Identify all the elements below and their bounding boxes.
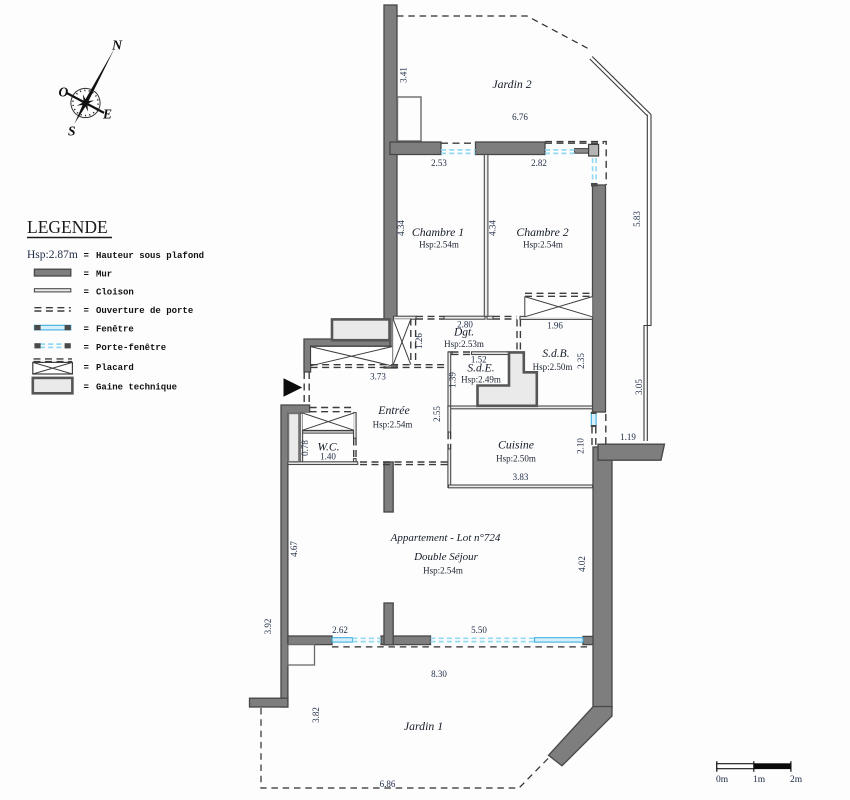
svg-text:2.53: 2.53: [431, 158, 447, 168]
svg-text:O: O: [59, 85, 69, 100]
svg-text:=: =: [84, 251, 89, 261]
svg-text:4.34: 4.34: [488, 220, 498, 236]
svg-text:Mur: Mur: [96, 270, 112, 280]
svg-text:5.83: 5.83: [632, 211, 642, 227]
svg-text:Hsp:2.54m: Hsp:2.54m: [423, 566, 463, 576]
svg-text:Placard: Placard: [96, 363, 134, 373]
svg-text:4.34: 4.34: [396, 220, 406, 236]
svg-text:Appartement - Lot n°724: Appartement - Lot n°724: [390, 532, 501, 544]
svg-text:2.82: 2.82: [531, 158, 547, 168]
svg-text:5.50: 5.50: [471, 625, 487, 635]
svg-text:Hsp:2.54m: Hsp:2.54m: [373, 420, 413, 430]
svg-text:=: =: [84, 343, 89, 353]
svg-text:S.d.B.: S.d.B.: [542, 348, 569, 360]
svg-text:Cuisine: Cuisine: [498, 438, 534, 452]
svg-text:3.05: 3.05: [634, 379, 644, 395]
svg-text:=: =: [84, 325, 89, 335]
svg-text:Jardin 2: Jardin 2: [492, 77, 531, 91]
svg-text:Entrée: Entrée: [377, 403, 409, 417]
svg-text:S: S: [68, 124, 76, 139]
svg-text:=: =: [84, 306, 89, 316]
svg-text:Gaine technique: Gaine technique: [96, 383, 177, 393]
svg-text:4.02: 4.02: [577, 556, 587, 572]
svg-text:8.30: 8.30: [431, 669, 447, 679]
svg-text:N: N: [111, 39, 123, 54]
svg-text:Hsp:2.50m: Hsp:2.50m: [533, 362, 573, 372]
svg-text:Hauteur sous plafond: Hauteur sous plafond: [96, 251, 204, 261]
svg-text:Cloison: Cloison: [96, 288, 134, 298]
svg-text:Dgt.: Dgt.: [453, 327, 474, 339]
svg-text:LEGENDE: LEGENDE: [27, 217, 108, 237]
svg-text:E: E: [102, 107, 112, 122]
svg-text:0.78: 0.78: [300, 440, 310, 456]
svg-text:2.62: 2.62: [332, 625, 348, 635]
svg-text:1m: 1m: [753, 775, 766, 785]
svg-text:=: =: [84, 270, 89, 280]
svg-text:Hsp:2.54m: Hsp:2.54m: [523, 240, 563, 250]
svg-text:Hsp:2.53m: Hsp:2.53m: [444, 339, 484, 349]
svg-text:1.39: 1.39: [448, 372, 458, 388]
svg-text:3.73: 3.73: [370, 372, 386, 382]
svg-text:1.19: 1.19: [620, 432, 636, 442]
svg-text:2.10: 2.10: [576, 438, 586, 454]
svg-text:6.86: 6.86: [380, 779, 396, 789]
svg-text:Hsp:2.49m: Hsp:2.49m: [461, 375, 501, 385]
svg-text:2m: 2m: [790, 775, 803, 785]
svg-text:=: =: [84, 363, 89, 373]
svg-text:Chambre 2: Chambre 2: [516, 225, 568, 239]
svg-text:3.92: 3.92: [263, 619, 273, 635]
svg-text:=: =: [84, 288, 89, 298]
svg-text:Double Séjour: Double Séjour: [413, 551, 479, 563]
svg-text:Chambre 1: Chambre 1: [412, 225, 464, 239]
svg-text:Porte-fenêtre: Porte-fenêtre: [96, 343, 166, 353]
svg-text:2.35: 2.35: [576, 353, 586, 369]
svg-text:Ouverture de porte: Ouverture de porte: [96, 306, 193, 316]
svg-text:6.76: 6.76: [512, 112, 528, 122]
svg-text:Jardin 1: Jardin 1: [404, 719, 443, 733]
svg-text:Hsp:2.54m: Hsp:2.54m: [419, 240, 459, 250]
svg-text:0m: 0m: [716, 775, 729, 785]
svg-text:3.41: 3.41: [399, 67, 409, 83]
svg-text:1.96: 1.96: [547, 321, 563, 331]
svg-text:=: =: [84, 383, 89, 393]
svg-text:3.82: 3.82: [311, 707, 321, 723]
svg-text:1.40: 1.40: [320, 452, 336, 462]
svg-text:1.26: 1.26: [414, 333, 424, 349]
svg-text:4.67: 4.67: [289, 541, 299, 557]
svg-text:2.55: 2.55: [432, 406, 442, 422]
svg-text:3.83: 3.83: [513, 472, 529, 482]
svg-text:Hsp:2.50m: Hsp:2.50m: [496, 454, 536, 464]
svg-text:S.d.E.: S.d.E.: [467, 363, 494, 375]
svg-text:Fenêtre: Fenêtre: [96, 325, 134, 335]
svg-text:Hsp:2.87m: Hsp:2.87m: [27, 249, 78, 261]
